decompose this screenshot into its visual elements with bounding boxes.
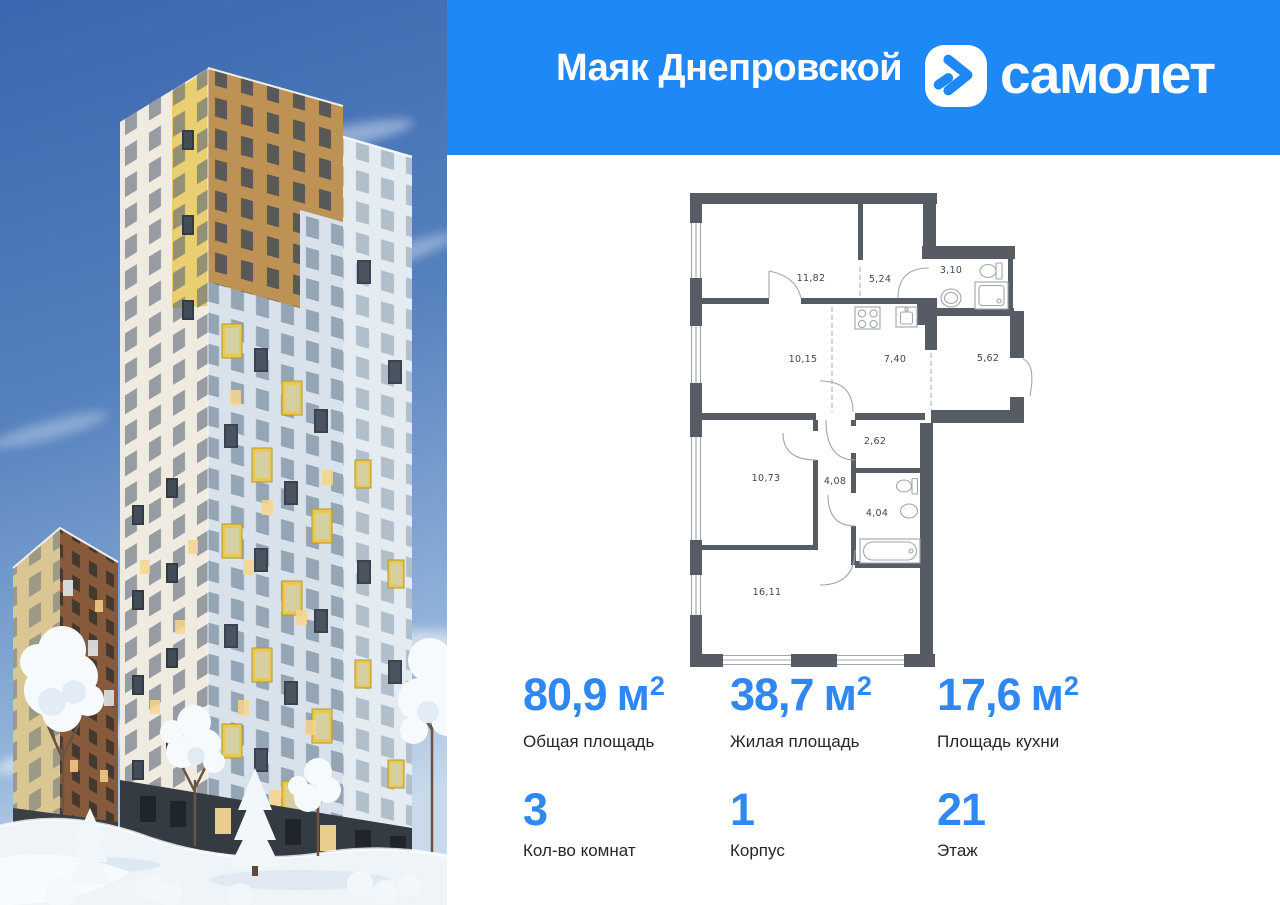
room-area: 2,62 bbox=[864, 436, 886, 447]
stat-building: 1 Корпус bbox=[730, 789, 937, 861]
brand-name: самолет bbox=[1000, 47, 1215, 102]
kitchen-fixtures bbox=[855, 307, 917, 329]
plan-walls bbox=[690, 193, 1024, 667]
stat-value: 38,7м2 bbox=[730, 674, 937, 722]
stat-label: Этаж bbox=[937, 840, 1144, 861]
room-area: 16,11 bbox=[753, 587, 782, 598]
brand-logo: самолет bbox=[925, 45, 1215, 107]
sink-icon bbox=[901, 504, 918, 518]
stat-value: 1 bbox=[730, 789, 937, 831]
stat-rooms: 3 Кол-во комнат bbox=[523, 789, 730, 861]
project-title: Маяк Днепровской bbox=[556, 49, 902, 87]
stat-value: 3 bbox=[523, 789, 730, 831]
stat-label: Корпус bbox=[730, 840, 937, 861]
stat-label: Площадь кухни bbox=[937, 731, 1144, 752]
stat-kitchen-area: 17,6м2 Площадь кухни bbox=[937, 674, 1144, 752]
stat-total-area: 80,9м2 Общая площадь bbox=[523, 674, 730, 752]
room-area: 10,73 bbox=[752, 473, 781, 484]
room-area: 4,08 bbox=[824, 476, 846, 487]
room-area: 5,62 bbox=[977, 353, 999, 364]
room-area: 11,82 bbox=[797, 273, 826, 284]
stat-value: 17,6м2 bbox=[937, 674, 1144, 722]
room-area: 5,24 bbox=[869, 274, 891, 285]
stat-value: 80,9м2 bbox=[523, 674, 730, 722]
stat-living-area: 38,7м2 Жилая площадь bbox=[730, 674, 937, 752]
toilet-icon bbox=[980, 265, 996, 278]
stat-floor: 21 Этаж bbox=[937, 789, 1144, 861]
room-area: 4,04 bbox=[866, 508, 888, 519]
building-photo bbox=[0, 0, 447, 905]
samolet-arrow-icon bbox=[925, 45, 987, 107]
toilet-icon bbox=[897, 480, 912, 492]
main-tower bbox=[120, 68, 412, 905]
header-banner: Маяк Днепровской самолет bbox=[447, 0, 1280, 155]
room-area: 3,10 bbox=[940, 265, 962, 276]
stats-grid: 80,9м2 Общая площадь 38,7м2 Жилая площад… bbox=[523, 674, 1144, 861]
stat-label: Общая площадь bbox=[523, 731, 730, 752]
floor-plan: 11,82 5,24 3,10 10,15 7,40 5,62 2,62 10,… bbox=[683, 183, 1033, 673]
room-area: 7,40 bbox=[884, 354, 906, 365]
room-area: 10,15 bbox=[789, 354, 818, 365]
stat-label: Жилая площадь bbox=[730, 731, 937, 752]
stat-value: 21 bbox=[937, 789, 1144, 831]
stat-label: Кол-во комнат bbox=[523, 840, 730, 861]
listing-card: Маяк Днепровской самолет bbox=[0, 0, 1280, 905]
